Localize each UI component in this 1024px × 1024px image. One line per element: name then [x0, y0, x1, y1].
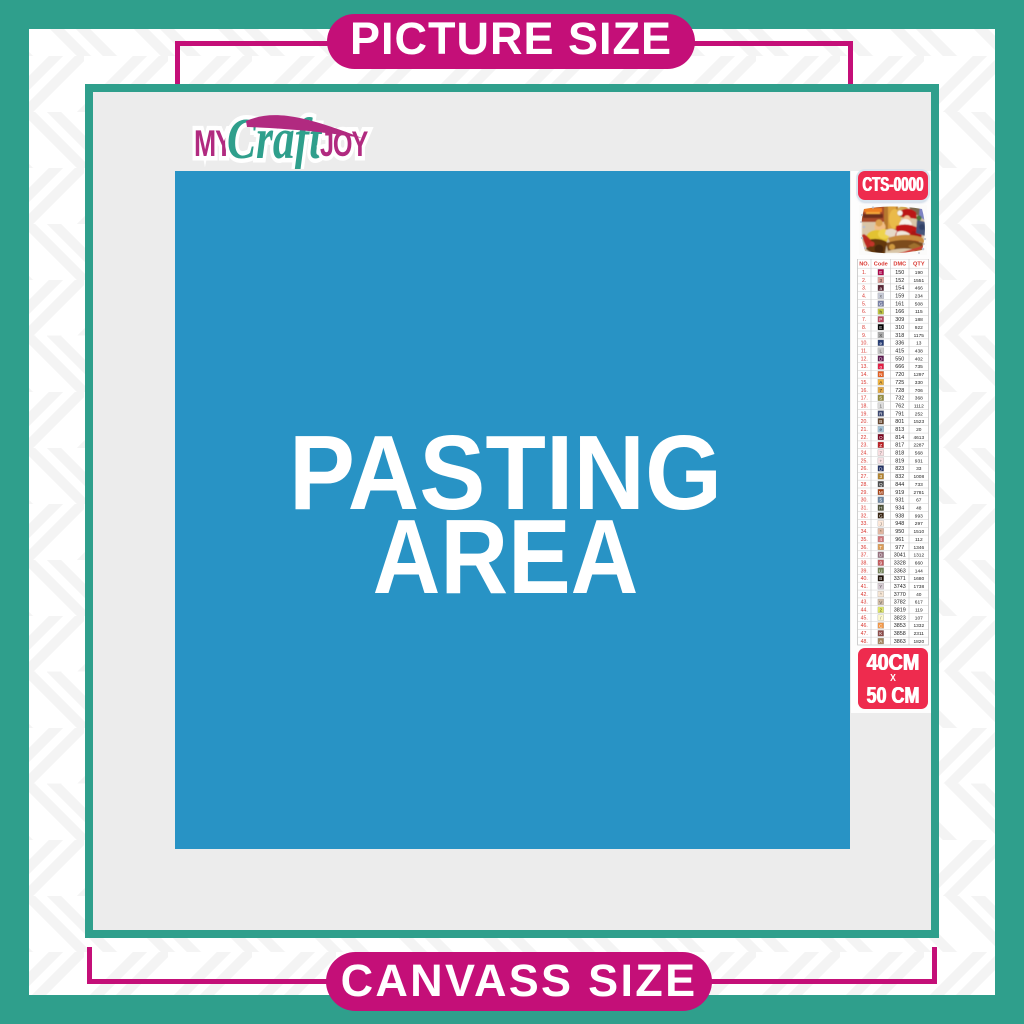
svg-text:993: 993 [915, 513, 923, 519]
svg-text:438: 438 [915, 349, 923, 355]
svg-text:1.: 1. [862, 270, 866, 276]
svg-text:154: 154 [895, 286, 904, 292]
svg-text:3782: 3782 [894, 600, 906, 606]
svg-text:115: 115 [915, 309, 923, 315]
svg-text:1738: 1738 [913, 584, 924, 590]
svg-text:977: 977 [895, 545, 904, 551]
svg-text:37.: 37. [861, 553, 868, 559]
svg-text:660: 660 [915, 560, 923, 566]
svg-text:934: 934 [895, 506, 904, 512]
svg-text:161: 161 [895, 301, 904, 307]
svg-text:23.: 23. [861, 443, 868, 449]
svg-text:617: 617 [915, 600, 923, 606]
svg-text:T: T [879, 545, 882, 550]
svg-text:19.: 19. [861, 411, 868, 417]
svg-text:112: 112 [915, 537, 923, 543]
svg-text:107: 107 [915, 615, 923, 621]
svg-text:10.: 10. [861, 341, 868, 347]
svg-text:H: H [879, 506, 882, 511]
svg-text:3371: 3371 [894, 576, 906, 582]
svg-text:a: a [880, 286, 883, 291]
svg-text:3: 3 [880, 278, 883, 283]
svg-text:791: 791 [895, 411, 904, 417]
svg-text:36.: 36. [861, 545, 868, 551]
svg-text:3328: 3328 [894, 560, 906, 566]
svg-text:1312: 1312 [913, 553, 924, 559]
svg-text:402: 402 [915, 356, 923, 362]
svg-text:h: h [880, 309, 883, 314]
svg-text:568: 568 [915, 451, 923, 457]
svg-text:3858: 3858 [894, 631, 906, 637]
svg-text:801: 801 [895, 419, 904, 425]
svg-text:33: 33 [916, 466, 922, 472]
svg-text:38.: 38. [861, 560, 868, 566]
svg-text:3.: 3. [862, 286, 866, 292]
svg-text:144: 144 [915, 568, 923, 574]
svg-text:26.: 26. [861, 466, 868, 472]
svg-text:41.: 41. [861, 584, 868, 590]
svg-text:166: 166 [895, 309, 904, 315]
svg-text:234: 234 [915, 294, 923, 300]
svg-text:948: 948 [895, 521, 904, 527]
svg-text:3: 3 [880, 474, 883, 479]
svg-text:3743: 3743 [894, 584, 906, 590]
svg-text:2781: 2781 [913, 490, 924, 496]
svg-text:814: 814 [895, 435, 904, 441]
svg-text:*: * [880, 529, 882, 534]
svg-text:34.: 34. [861, 529, 868, 535]
svg-text:310: 310 [895, 325, 904, 331]
svg-text:931: 931 [895, 498, 904, 504]
svg-text:G: G [879, 513, 883, 518]
svg-text:39.: 39. [861, 568, 868, 574]
svg-text:728: 728 [895, 388, 904, 394]
svg-text:1680: 1680 [913, 576, 924, 582]
svg-text:297: 297 [915, 521, 923, 527]
svg-text:40.: 40. [861, 576, 868, 582]
svg-text:844: 844 [895, 482, 904, 488]
svg-text:4613: 4613 [913, 435, 924, 441]
svg-text:252: 252 [915, 411, 923, 417]
svg-text:1820: 1820 [913, 639, 924, 645]
svg-text:DMC: DMC [893, 262, 906, 268]
svg-text:152: 152 [895, 278, 904, 284]
svg-text:32.: 32. [861, 513, 868, 519]
svg-text:48: 48 [916, 506, 922, 512]
svg-text:29.: 29. [861, 490, 868, 496]
svg-text:Z: Z [879, 443, 882, 448]
svg-text:33.: 33. [861, 521, 868, 527]
svg-text:+: + [879, 459, 882, 464]
svg-text:1297: 1297 [913, 372, 924, 378]
svg-text:4: 4 [880, 537, 883, 542]
svg-text:QTY: QTY [913, 262, 925, 268]
svg-text:42.: 42. [861, 592, 868, 598]
svg-text:3819: 3819 [894, 608, 906, 614]
svg-text:1332: 1332 [913, 623, 924, 629]
svg-text:3853: 3853 [894, 623, 906, 629]
svg-text:919: 919 [895, 490, 904, 496]
svg-text:733: 733 [915, 482, 923, 488]
svg-text:M: M [879, 490, 883, 495]
svg-text:318: 318 [895, 333, 904, 339]
svg-text:818: 818 [895, 451, 904, 457]
svg-text:E: E [879, 325, 882, 330]
svg-text:Q: Q [879, 482, 883, 487]
svg-text:725: 725 [895, 380, 904, 386]
svg-text:119: 119 [915, 608, 923, 614]
svg-text:961: 961 [895, 537, 904, 543]
svg-text:5.: 5. [862, 301, 866, 307]
svg-text:45.: 45. [861, 615, 868, 621]
svg-text:e: e [880, 427, 883, 432]
svg-text:508: 508 [915, 301, 923, 307]
svg-text:30.: 30. [861, 498, 868, 504]
svg-text:931: 931 [915, 458, 923, 464]
svg-text:330: 330 [915, 380, 923, 386]
svg-text:o: o [880, 364, 883, 369]
svg-text:46.: 46. [861, 623, 868, 629]
svg-text:20: 20 [916, 427, 922, 433]
svg-text:NO.: NO. [859, 262, 869, 268]
svg-text:2311: 2311 [914, 631, 925, 637]
svg-text:8.: 8. [862, 325, 866, 331]
svg-text:15.: 15. [861, 380, 868, 386]
svg-text:368: 368 [915, 396, 923, 402]
svg-text:2: 2 [880, 608, 883, 613]
svg-text:950: 950 [895, 529, 904, 535]
svg-text:188: 188 [915, 317, 923, 323]
svg-text:813: 813 [895, 427, 904, 433]
svg-text:415: 415 [895, 349, 904, 355]
svg-text:1523: 1523 [913, 419, 924, 425]
svg-text:Code: Code [874, 262, 888, 268]
svg-text:11.: 11. [861, 349, 868, 355]
svg-text:466: 466 [915, 286, 923, 292]
svg-text:17.: 17. [861, 396, 868, 402]
svg-text:B: B [879, 576, 882, 581]
svg-text:7: 7 [880, 451, 883, 456]
svg-text:550: 550 [895, 356, 904, 362]
svg-text:18.: 18. [861, 403, 868, 409]
svg-text:309: 309 [895, 317, 904, 323]
svg-text:2.: 2. [862, 278, 866, 284]
svg-text:47.: 47. [861, 631, 868, 637]
svg-text:762: 762 [895, 403, 904, 409]
svg-text:21.: 21. [861, 427, 868, 433]
svg-text:3823: 3823 [894, 615, 906, 621]
svg-text:13.: 13. [861, 364, 868, 370]
svg-text:U: U [879, 568, 882, 573]
svg-text:S: S [879, 396, 882, 401]
svg-text:666: 666 [895, 364, 904, 370]
svg-text:7: 7 [880, 388, 883, 393]
svg-text:G: G [879, 302, 883, 307]
svg-text:P: P [879, 317, 882, 322]
svg-text:O: O [879, 435, 883, 440]
svg-text:e: e [880, 341, 883, 346]
svg-text:16.: 16. [861, 388, 868, 394]
svg-text:12.: 12. [861, 356, 868, 362]
svg-text:4.: 4. [862, 294, 866, 300]
svg-text:938: 938 [895, 513, 904, 519]
svg-text:N: N [879, 372, 882, 377]
svg-text:3863: 3863 [894, 639, 906, 645]
svg-text:Y: Y [879, 584, 882, 589]
svg-text:35.: 35. [861, 537, 868, 543]
svg-text:48.: 48. [861, 639, 868, 645]
svg-text:31.: 31. [861, 506, 868, 512]
svg-text:735: 735 [915, 364, 923, 370]
svg-text:336: 336 [895, 341, 904, 347]
svg-text:44.: 44. [861, 608, 868, 614]
svg-text:E: E [879, 270, 882, 275]
svg-text:67: 67 [916, 498, 922, 504]
svg-text:24.: 24. [861, 451, 868, 457]
svg-text:1346: 1346 [913, 545, 924, 551]
svg-text:1175: 1175 [914, 333, 925, 339]
svg-text:817: 817 [895, 443, 904, 449]
svg-text:1510: 1510 [913, 529, 924, 535]
svg-text:14.: 14. [861, 372, 868, 378]
svg-text:1551: 1551 [913, 278, 924, 284]
svg-text:27.: 27. [861, 474, 868, 480]
svg-text:159: 159 [895, 294, 904, 300]
svg-text:819: 819 [895, 458, 904, 464]
svg-text:13: 13 [916, 341, 922, 347]
svg-text:150: 150 [895, 270, 904, 276]
svg-text:9.: 9. [862, 333, 866, 339]
svg-text:922: 922 [915, 325, 923, 331]
svg-text:L: L [880, 349, 883, 354]
svg-text:3363: 3363 [894, 568, 906, 574]
svg-text:2287: 2287 [913, 443, 924, 449]
svg-text:190: 190 [915, 270, 923, 276]
svg-text:25.: 25. [861, 458, 868, 464]
svg-text:9: 9 [880, 561, 883, 566]
svg-text:823: 823 [895, 466, 904, 472]
svg-text:28.: 28. [861, 482, 868, 488]
svg-text:732: 732 [895, 396, 904, 402]
svg-text:B: B [879, 419, 882, 424]
svg-text:3770: 3770 [894, 592, 906, 598]
svg-text:J: J [880, 521, 882, 526]
svg-text:22.: 22. [861, 435, 868, 441]
svg-text:7.: 7. [862, 317, 866, 323]
svg-text:20.: 20. [861, 419, 868, 425]
svg-text:X: X [879, 333, 882, 338]
svg-text:40: 40 [916, 592, 922, 598]
svg-text:3041: 3041 [894, 553, 906, 559]
svg-text:1008: 1008 [913, 474, 924, 480]
svg-text:720: 720 [895, 372, 904, 378]
svg-text:5: 5 [880, 498, 883, 503]
svg-text:1112: 1112 [914, 403, 924, 409]
svg-text:6.: 6. [862, 309, 866, 315]
svg-text:43.: 43. [861, 600, 868, 606]
svg-text:832: 832 [895, 474, 904, 480]
svg-text:1: 1 [880, 404, 883, 409]
svg-text:706: 706 [915, 388, 923, 394]
